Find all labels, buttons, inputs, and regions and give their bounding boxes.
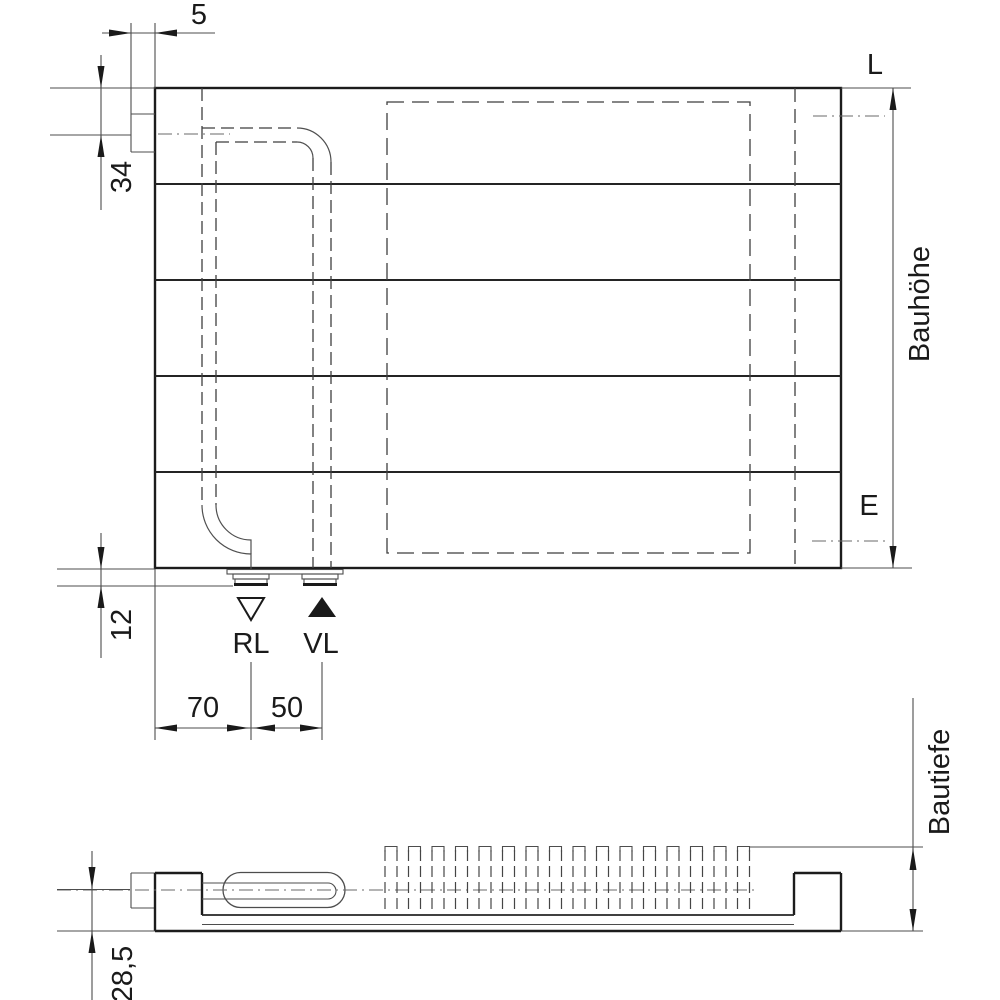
bottom-view-dimensions: Bautiefe 28,5 xyxy=(57,698,956,1000)
channel-pipe-uturn xyxy=(328,883,336,899)
fin-cap xyxy=(597,847,609,853)
arrowhead xyxy=(227,725,249,732)
fin-cap xyxy=(714,847,726,853)
dimension-label-285: 28,5 xyxy=(107,946,139,1000)
arrowhead xyxy=(98,135,105,157)
fin-cap xyxy=(503,847,515,853)
connection-bottom-mark: E xyxy=(859,490,878,522)
fin-cap xyxy=(550,847,562,853)
arrowhead xyxy=(109,30,131,37)
flow-label: VL xyxy=(303,628,338,660)
arrowhead xyxy=(98,547,105,569)
arrowhead xyxy=(98,66,105,88)
dimension-label-34: 34 xyxy=(106,161,138,193)
bottom-view xyxy=(57,847,841,932)
arrowhead xyxy=(890,88,897,110)
arrowhead xyxy=(910,848,917,870)
arrowhead xyxy=(253,725,275,732)
fin-cap xyxy=(526,847,538,853)
fin-cap xyxy=(573,847,585,853)
arrowhead xyxy=(98,586,105,608)
dimension-label-5: 5 xyxy=(191,0,207,31)
vl-stub-flange xyxy=(302,574,338,579)
fin-cap xyxy=(667,847,679,853)
pipe-elbow-outer-arc xyxy=(297,128,331,162)
radiator-drawing: RL VL 5 34 L E Bauhöhe 12 xyxy=(0,0,1000,1000)
arrowhead xyxy=(890,546,897,568)
arrowhead xyxy=(155,725,177,732)
fin-cap xyxy=(479,847,491,853)
arrowhead xyxy=(89,867,96,889)
dimension-label-70: 70 xyxy=(187,692,219,724)
front-view: RL VL xyxy=(131,23,885,660)
fin-cap xyxy=(456,847,468,853)
fin-cap xyxy=(738,847,750,853)
flow-direction-icon xyxy=(308,597,336,617)
return-label: RL xyxy=(232,628,269,660)
arrowhead xyxy=(910,909,917,931)
arrowhead xyxy=(89,931,96,953)
arrowhead xyxy=(155,30,177,37)
fin-cap xyxy=(432,847,444,853)
connection-plate xyxy=(227,570,343,575)
fin-cap xyxy=(385,847,397,853)
pipe-elbow-inner-arc xyxy=(297,142,313,158)
pipe-bottom-elbow-inner-arc xyxy=(216,505,251,554)
front-view-outline xyxy=(155,88,841,568)
fin-cap xyxy=(691,847,703,853)
front-view-dimensions: 5 34 L E Bauhöhe 12 70 50 xyxy=(50,0,936,740)
connection-top-mark: L xyxy=(867,49,883,81)
depth-label: Bautiefe xyxy=(924,729,956,835)
pipe-bottom-elbow-outer-arc xyxy=(202,505,251,569)
height-label: Bauhöhe xyxy=(904,246,936,362)
dimension-label-12: 12 xyxy=(106,609,138,641)
technical-drawing-canvas: RL VL 5 34 L E Bauhöhe 12 xyxy=(0,0,1000,1000)
arrowhead xyxy=(300,725,322,732)
convector-fins xyxy=(385,847,750,915)
dimension-label-50: 50 xyxy=(271,692,303,724)
return-direction-icon xyxy=(238,598,264,620)
fin-cap xyxy=(409,847,421,853)
fin-cap xyxy=(644,847,656,853)
rl-stub-flange xyxy=(233,574,269,579)
fin-cap xyxy=(620,847,632,853)
hidden-inner-panel-outline xyxy=(387,102,750,553)
